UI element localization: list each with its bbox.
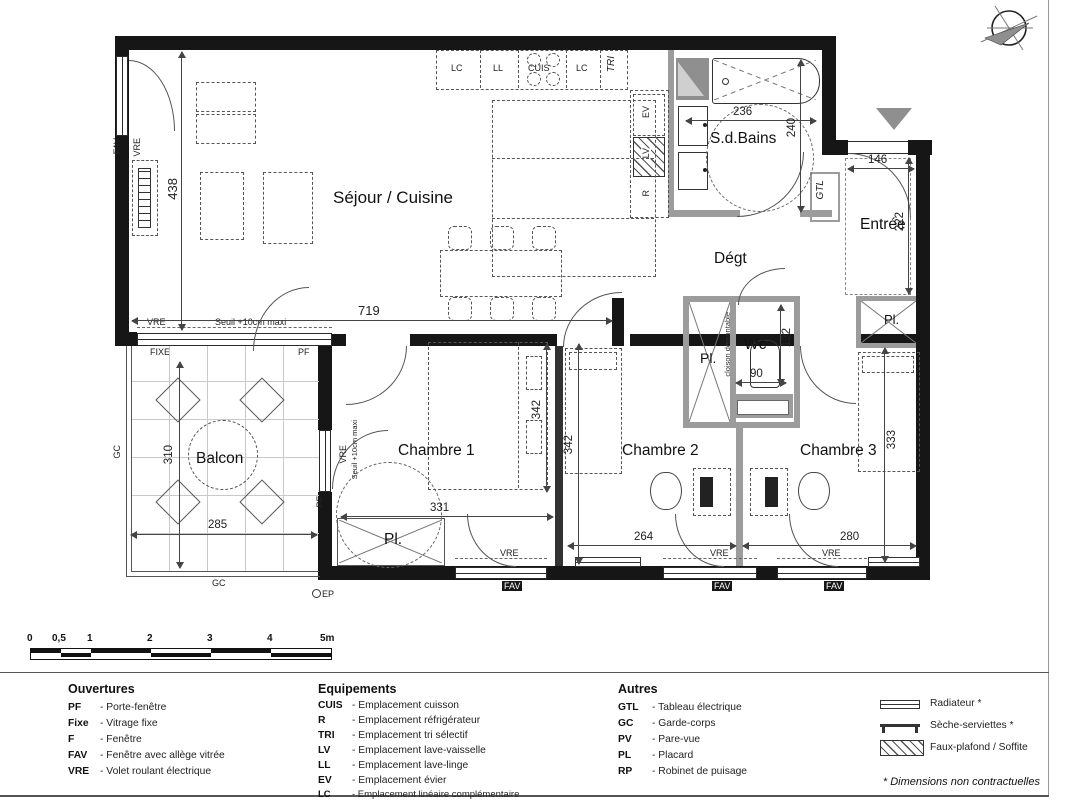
legend-au-label-3: - Placard bbox=[652, 750, 693, 761]
shelf-unit bbox=[196, 82, 256, 112]
frame-bottom-line bbox=[0, 795, 1049, 797]
bathtub-faucet bbox=[722, 78, 729, 85]
dim-label-719: 719 bbox=[358, 303, 380, 318]
legend-eq-abbr-3: LV bbox=[318, 745, 330, 756]
desk-ch3-screen bbox=[765, 477, 778, 507]
dim-label-264: 264 bbox=[634, 531, 653, 543]
legend-au-label-0: - Tableau électrique bbox=[652, 702, 742, 713]
legend-ouvertures-title: Ouvertures bbox=[68, 682, 135, 696]
legend-ouv-label-4: - Volet roulant électrique bbox=[100, 766, 211, 777]
scale-bar bbox=[30, 648, 332, 660]
turning-circle-ch1 bbox=[336, 462, 442, 568]
scale-tick-05: 0,5 bbox=[52, 633, 66, 644]
wall-entree-jamb-right bbox=[908, 140, 932, 155]
room-label-sdbains: S.d.Bains bbox=[710, 130, 776, 148]
legend-autres-title: Autres bbox=[618, 682, 658, 696]
door-arc-wc bbox=[738, 268, 785, 305]
room-label-chambre2: Chambre 2 bbox=[622, 442, 699, 460]
dining-chair-4 bbox=[448, 297, 472, 321]
sofa-seam-2 bbox=[492, 218, 654, 219]
dim-line-264 bbox=[568, 545, 736, 546]
dining-chair-3 bbox=[532, 226, 556, 250]
window-fav-left bbox=[116, 56, 128, 136]
soffit-symbol-icon bbox=[880, 740, 924, 756]
window-fav-left-tag: FAV bbox=[112, 138, 122, 154]
legend-eq-label-4: - Emplacement lave-linge bbox=[352, 760, 468, 771]
dim-label-310: 310 bbox=[163, 445, 175, 464]
legend-equipements-title: Equipements bbox=[318, 682, 397, 696]
legend-eq-label-1: - Emplacement réfrigérateur bbox=[352, 715, 480, 726]
side-table bbox=[200, 172, 244, 240]
dim-label-90: 90 bbox=[750, 368, 763, 380]
wall-ch1-ch2 bbox=[555, 346, 563, 566]
scale-seg bbox=[91, 649, 151, 653]
legend-eq-label-6: - Emplacement linéaire complémentaire bbox=[352, 789, 519, 800]
legend-eq-abbr-1: R bbox=[318, 715, 325, 726]
legend-au-abbr-0: GTL bbox=[618, 702, 639, 713]
dim-label-280: 280 bbox=[840, 531, 859, 543]
wall-left-corner bbox=[115, 332, 137, 346]
legend-ouv-label-0: - Porte-fenêtre bbox=[100, 702, 166, 713]
scale-tick-2: 2 bbox=[147, 633, 153, 644]
entrance-marker-triangle bbox=[876, 108, 912, 130]
ch1-window-fav-tag: FAV bbox=[502, 581, 522, 591]
kitchen-div-3 bbox=[566, 50, 567, 88]
kitchen-tri-label: TRI bbox=[606, 56, 617, 72]
dim-line-90 bbox=[736, 382, 786, 383]
legend-eq-label-0: - Emplacement cuisson bbox=[352, 700, 459, 711]
radiator-symbol-icon bbox=[880, 700, 920, 709]
bed-ch2-pillow bbox=[569, 352, 617, 370]
dim-line-333 bbox=[884, 348, 885, 562]
scale-seg bbox=[211, 649, 271, 653]
legend-ouv-label-3: - Fenêtre avec allège vitrée bbox=[100, 750, 225, 761]
radiator-ch2 bbox=[575, 557, 641, 567]
dim-line-342b bbox=[578, 344, 579, 564]
dim-line-438 bbox=[181, 52, 182, 330]
wc-block-wall-right bbox=[794, 296, 800, 428]
kitchen-div-1 bbox=[480, 50, 481, 88]
dining-table bbox=[440, 250, 562, 297]
closet-entree-label: Pl. bbox=[884, 312, 899, 327]
ep-marker-circle bbox=[312, 589, 321, 598]
legend-top-line bbox=[0, 672, 1049, 673]
chair-ch2 bbox=[650, 472, 682, 510]
hob-burner-1 bbox=[527, 53, 541, 67]
dining-chair-1 bbox=[448, 226, 472, 250]
shelf-unit-2 bbox=[196, 114, 256, 144]
legend-au-label-2: - Pare-vue bbox=[652, 734, 700, 745]
ch3-window-fav-tag: FAV bbox=[824, 581, 844, 591]
dim-label-236: 236 bbox=[733, 106, 752, 118]
room-label-degt: Dégt bbox=[714, 250, 747, 268]
scale-seg bbox=[61, 653, 91, 657]
frame-right-line bbox=[1048, 0, 1049, 797]
scale-tick-3: 3 bbox=[207, 633, 213, 644]
legend-au-abbr-4: RP bbox=[618, 766, 632, 777]
balcony-gc-left-tag: GC bbox=[112, 445, 122, 459]
window-fav-ch2 bbox=[663, 567, 757, 579]
legend-ouv-abbr-2: F bbox=[68, 734, 74, 745]
scale-seg bbox=[151, 653, 211, 657]
gtl-label: GTL bbox=[815, 180, 826, 199]
towel-dryer-symbol-icon bbox=[880, 724, 920, 735]
wall-top bbox=[115, 36, 836, 50]
legend-eq-abbr-2: TRI bbox=[318, 730, 335, 741]
legend-faux-label: Faux-plafond / Soffite bbox=[930, 742, 1028, 753]
ch1-seuil-tag: Seuil +10cm maxi bbox=[350, 420, 359, 479]
window-arc-ch3 bbox=[789, 514, 838, 567]
legend-radiateur-label: Radiateur * bbox=[930, 698, 982, 709]
door-arc-ch3 bbox=[800, 346, 856, 404]
legend-au-abbr-1: GC bbox=[618, 718, 633, 729]
dim-line-342a bbox=[546, 344, 547, 492]
dining-chair-2 bbox=[490, 226, 514, 250]
window-pf-ch1 bbox=[319, 430, 331, 492]
dim-label-222: 222 bbox=[894, 212, 906, 231]
scale-tick-1: 1 bbox=[87, 633, 93, 644]
wc-block-wall-bottom bbox=[683, 422, 800, 428]
bed-ch1-pillow-1 bbox=[526, 356, 542, 390]
cloison-demontable-label: cloison démontable bbox=[723, 312, 732, 377]
scale-seg bbox=[271, 653, 331, 657]
window-fav-ch1 bbox=[455, 567, 547, 579]
vanity-knob-1 bbox=[703, 123, 707, 127]
legend-au-label-1: - Garde-corps bbox=[652, 718, 716, 729]
hob-burner-4 bbox=[546, 72, 560, 86]
legend-au-abbr-3: PL bbox=[618, 750, 631, 761]
ch2-window-fav-tag: FAV bbox=[712, 581, 732, 591]
dim-line-280 bbox=[743, 545, 916, 546]
entrance-door-gap bbox=[848, 141, 908, 154]
legend-ouv-abbr-3: FAV bbox=[68, 750, 87, 761]
bed-ch3-pillow bbox=[862, 356, 914, 373]
door-arc-fav-left bbox=[129, 60, 175, 131]
legend-eq-abbr-6: LC bbox=[318, 789, 331, 800]
window-arc-ch1 bbox=[467, 514, 516, 567]
dim-label-331: 331 bbox=[430, 502, 449, 514]
door-arc-sejour-pf bbox=[253, 287, 309, 351]
chair-ch3 bbox=[798, 472, 830, 510]
wall-mid-a bbox=[332, 334, 346, 346]
wall-entree-jamb-left bbox=[830, 140, 848, 155]
legend-eq-abbr-5: EV bbox=[318, 775, 332, 786]
window-fav-left-vre-tag: VRE bbox=[132, 138, 142, 157]
dim-line-310 bbox=[179, 362, 180, 568]
dim-label-240: 240 bbox=[786, 118, 798, 137]
legend-ouv-abbr-1: Fixe bbox=[68, 718, 89, 729]
balcony-gc-bottom-tag: GC bbox=[212, 578, 226, 588]
legend-au-abbr-2: PV bbox=[618, 734, 632, 745]
dim-label-342b: 342 bbox=[563, 435, 575, 454]
wall-balcony-right-upper bbox=[318, 346, 332, 430]
bed-ch1-headline bbox=[518, 342, 519, 488]
wall-bath-right bbox=[822, 36, 836, 155]
hob-burner-2 bbox=[546, 53, 560, 67]
dim-line-240 bbox=[800, 60, 801, 212]
scale-seg bbox=[31, 649, 61, 653]
kitchen-lc2-label: LC bbox=[576, 63, 588, 73]
legend-eq-abbr-0: CUIS bbox=[318, 700, 343, 711]
dining-chair-6 bbox=[532, 297, 556, 321]
dim-line-222 bbox=[908, 158, 909, 294]
shower-highlight bbox=[678, 62, 704, 96]
dim-line-146 bbox=[848, 168, 914, 169]
window-fav-ch3 bbox=[777, 567, 867, 579]
door-arc-ch1 bbox=[346, 346, 407, 405]
room-label-balcon: Balcon bbox=[196, 450, 243, 468]
radiator-ch3 bbox=[868, 557, 920, 567]
dining-chair-5 bbox=[490, 297, 514, 321]
legend-ouv-label-2: - Fenêtre bbox=[100, 734, 142, 745]
dim-label-438: 438 bbox=[165, 178, 180, 200]
towel-dryer-leg-left bbox=[882, 727, 885, 733]
legend-ouv-abbr-0: PF bbox=[68, 702, 81, 713]
wc-bench-inner bbox=[737, 400, 789, 415]
dim-label-333: 333 bbox=[886, 430, 898, 449]
sofa-seam-1 bbox=[492, 158, 654, 159]
kitchen-div-2 bbox=[518, 50, 519, 88]
dim-label-146: 146 bbox=[868, 154, 887, 166]
legend-au-label-4: - Robinet de puisage bbox=[652, 766, 747, 777]
scale-tick-0: 0 bbox=[27, 633, 33, 644]
legend-footnote: * Dimensions non contractuelles bbox=[800, 776, 1040, 788]
room-label-chambre1: Chambre 1 bbox=[398, 442, 475, 460]
dim-label-285: 285 bbox=[208, 519, 227, 531]
desk-ch2-screen bbox=[700, 477, 713, 507]
bed-ch1-pillow-2 bbox=[526, 420, 542, 454]
closet-wc-label: Pl. bbox=[700, 350, 716, 366]
legend-eq-abbr-4: LL bbox=[318, 760, 331, 771]
dim-line-719 bbox=[132, 320, 612, 321]
armchair bbox=[263, 172, 313, 244]
legend-eq-label-2: - Emplacement tri sélectif bbox=[352, 730, 468, 741]
towel-dryer-leg-right bbox=[915, 727, 918, 733]
scale-tick-4: 4 bbox=[267, 633, 273, 644]
ch1-vre-tag: VRE bbox=[338, 445, 348, 464]
legend-eq-label-5: - Emplacement évier bbox=[352, 775, 446, 786]
ep-marker-label: EP bbox=[322, 589, 334, 599]
window-arc-ch2 bbox=[675, 514, 724, 567]
legend-ouv-label-1: - Vitrage fixe bbox=[100, 718, 158, 729]
scale-tick-5m: 5m bbox=[320, 633, 334, 644]
dim-line-285 bbox=[131, 534, 317, 535]
legend-ouv-abbr-4: VRE bbox=[68, 766, 89, 777]
room-label-sejour: Séjour / Cuisine bbox=[333, 188, 453, 208]
kitchen-div-4 bbox=[600, 50, 601, 88]
radiator-sejour-box bbox=[132, 160, 158, 236]
floor-plan-page: Pl. cloison démontable Pl. Pl. FAV VRE V… bbox=[0, 0, 1068, 800]
room-label-wc: Wc bbox=[744, 336, 766, 354]
kitchen-ll-label: LL bbox=[493, 63, 503, 73]
legend-seche-label: Sèche-serviettes * bbox=[930, 720, 1014, 731]
hob-burner-3 bbox=[527, 72, 541, 86]
legend-eq-label-3: - Emplacement lave-vaisselle bbox=[352, 745, 486, 756]
room-label-chambre3: Chambre 3 bbox=[800, 442, 877, 460]
sejour-vre-tag: VRE bbox=[147, 317, 166, 327]
dim-label-132: 132 bbox=[781, 328, 793, 347]
dim-line-331 bbox=[341, 516, 553, 517]
dim-label-342a: 342 bbox=[531, 400, 543, 419]
kitchen-lc1-label: LC bbox=[451, 63, 463, 73]
wall-bath-south-a bbox=[668, 210, 740, 217]
compass-north-icon bbox=[975, 2, 1053, 58]
